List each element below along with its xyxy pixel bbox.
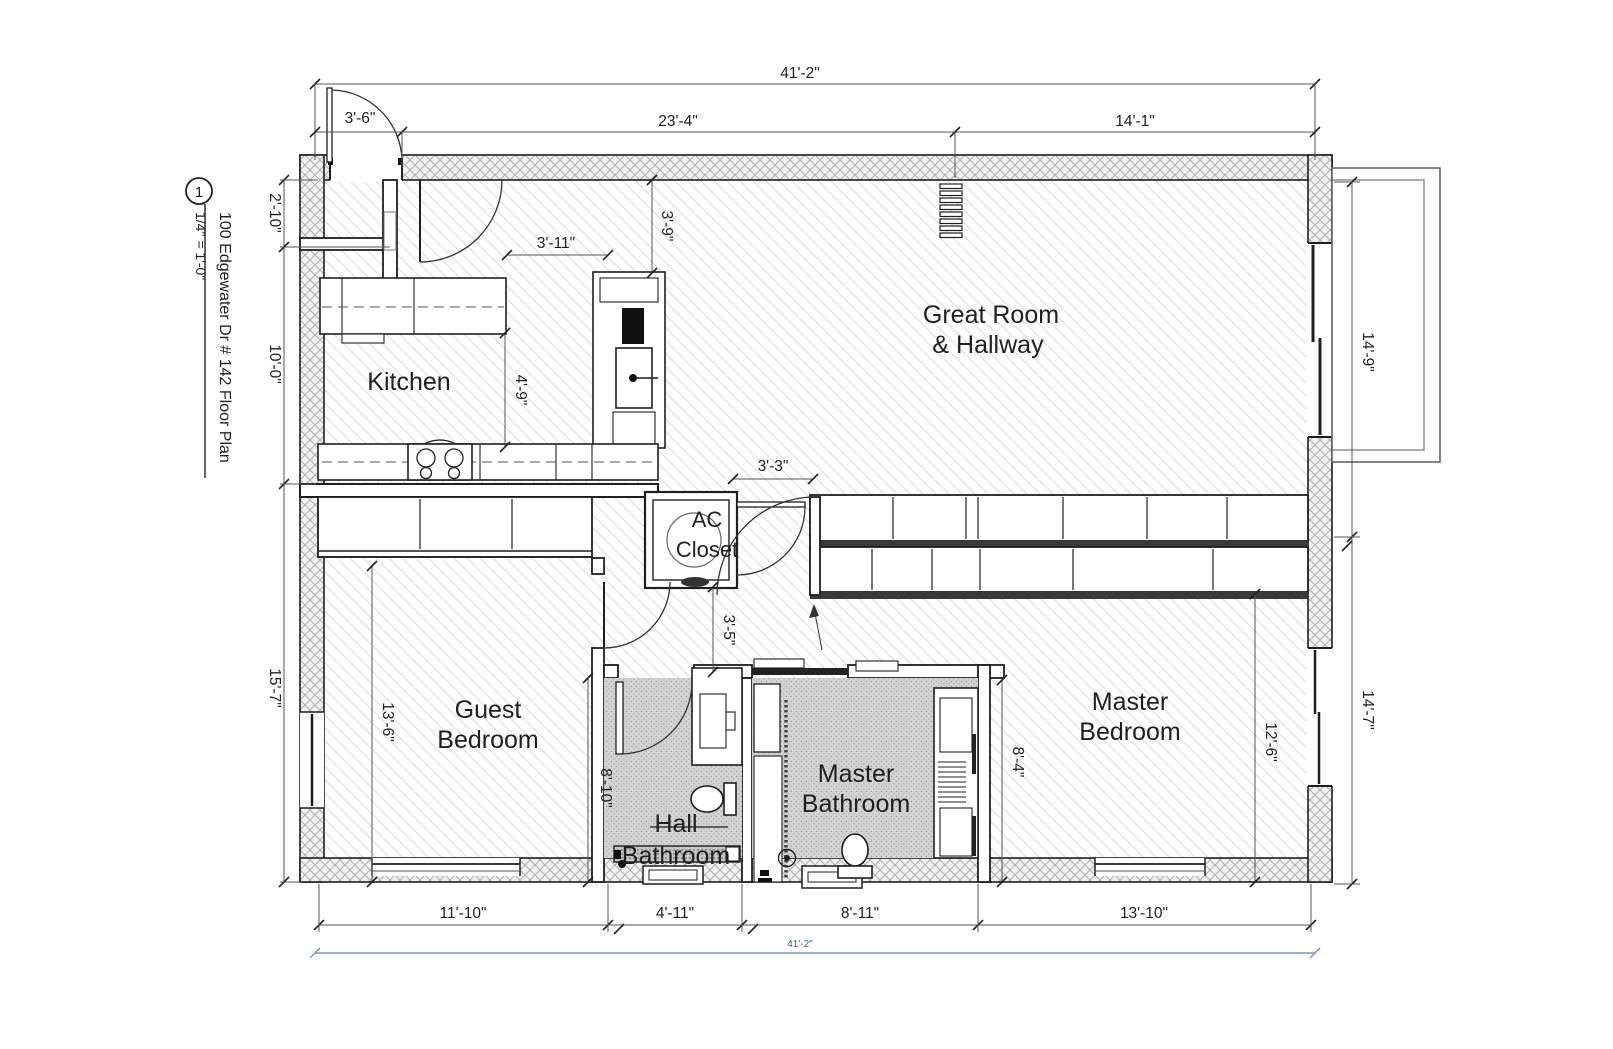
dim-right-lower: 14'-7" — [1359, 690, 1376, 729]
entry-closet-wall-h — [300, 238, 392, 250]
drawing-scale: 1/4" = 1'-0" — [193, 212, 209, 280]
sliding-door — [1306, 243, 1334, 437]
bath-divider-wall — [742, 678, 752, 882]
dim-bottom-guest: 11'-10" — [440, 905, 487, 922]
floor-plan-drawing: 41'-2" 23'-4" 14'-1" 3'-6" 2'-10" 10'-0"… — [0, 0, 1613, 1049]
floor-plan-page: 41'-2" 23'-4" 14'-1" 3'-6" 2'-10" 10'-0"… — [0, 0, 1613, 1049]
dim-left-kitchen: 10'-0" — [266, 344, 283, 383]
hall-sink — [700, 694, 726, 748]
kitchen-counter-lower — [318, 440, 658, 480]
dim-kitchen-top: 3'-9" — [658, 211, 675, 242]
guest-hall-wall — [592, 648, 604, 882]
kitchen-island — [593, 272, 665, 448]
master-bedroom-bottom-window — [1095, 858, 1205, 876]
label-guest-bedroom-2: Bedroom — [437, 726, 538, 754]
label-ac-closet-1: AC — [692, 507, 723, 532]
dim-master-bath-len: 8'-4" — [1009, 747, 1026, 778]
dim-overall-bottom: 41'-2" — [787, 939, 813, 950]
dim-kitchen-aisle-w: 3'-11" — [537, 235, 575, 252]
label-master-bedroom-1: Master — [1092, 688, 1168, 716]
dim-entry: 3'-6" — [345, 110, 376, 127]
guest-closet — [318, 497, 592, 557]
label-ac-closet-2: Closet — [676, 537, 738, 562]
shower-bench — [754, 684, 780, 752]
dim-entry-closet: 2'-10" — [266, 193, 283, 232]
dim-bottom-master-bath: 8'-11" — [841, 905, 879, 922]
hall-toilet — [691, 786, 723, 812]
dim-hall-opening: 3'-3" — [758, 458, 789, 475]
dim-kitchen-aisle-h: 4'-9" — [512, 375, 529, 406]
dim-hall-bath-len: 8'-10" — [597, 768, 614, 807]
balcony — [1332, 168, 1440, 462]
dim-top-right: 14'-1" — [1115, 113, 1154, 130]
title-block: 1 100 Edgewater Dr # 142 Floor Plan 1/4"… — [186, 178, 233, 478]
kitchen-bedroom-wall — [300, 484, 658, 497]
master-closet-row — [810, 547, 1308, 599]
drawing-title: 100 Edgewater Dr # 142 Floor Plan — [216, 212, 233, 463]
label-guest-bedroom-1: Guest — [455, 696, 522, 724]
dim-hall-depth: 3'-5" — [720, 615, 737, 646]
label-kitchen: Kitchen — [367, 368, 450, 396]
dim-overall-top: 41'-2" — [780, 65, 819, 82]
dim-bottom-hall-bath: 4'-11" — [656, 905, 694, 922]
label-master-bedroom-2: Bedroom — [1079, 718, 1180, 746]
dim-right-upper: 14'-9" — [1359, 332, 1376, 371]
label-great-room-1: Great Room — [923, 301, 1059, 329]
master-vanity — [934, 688, 978, 858]
bath-bedroom-wall — [978, 665, 990, 882]
master-toilet — [842, 834, 868, 866]
guest-bedroom-side-window — [300, 712, 324, 808]
label-master-bathroom-1: Master — [818, 760, 894, 788]
dim-left-bedroom: 15'-7" — [266, 668, 283, 707]
top-wall — [300, 155, 1332, 180]
entry-closet-door — [384, 212, 396, 250]
dim-master-bed-w: 12'-6" — [1262, 722, 1279, 761]
label-master-bathroom-2: Bathroom — [802, 790, 910, 818]
label-hall-bathroom-2: Bathroom — [622, 842, 730, 870]
hallway-closet-row — [810, 495, 1308, 547]
master-bedroom-window — [1306, 648, 1334, 786]
stove — [408, 440, 472, 480]
blue-overall-dimension — [310, 948, 1320, 958]
master-bath-pocket-door — [752, 668, 848, 675]
sheet-number: 1 — [195, 184, 203, 201]
dim-bottom-master-bed: 13'-10" — [1120, 905, 1168, 922]
dim-guest-width: 13'-6" — [379, 702, 396, 741]
shower-pan — [754, 756, 782, 882]
label-great-room-2: & Hallway — [932, 331, 1044, 359]
guest-bedroom-bottom-window — [372, 858, 520, 876]
ac-vent — [681, 577, 709, 587]
entry-opening — [330, 153, 402, 182]
island-appliance — [622, 308, 644, 344]
kitchen-counter-upper — [320, 278, 506, 343]
dim-top-left: 23'-4" — [658, 113, 697, 130]
label-hall-bathroom-1: Hall — [654, 810, 697, 838]
